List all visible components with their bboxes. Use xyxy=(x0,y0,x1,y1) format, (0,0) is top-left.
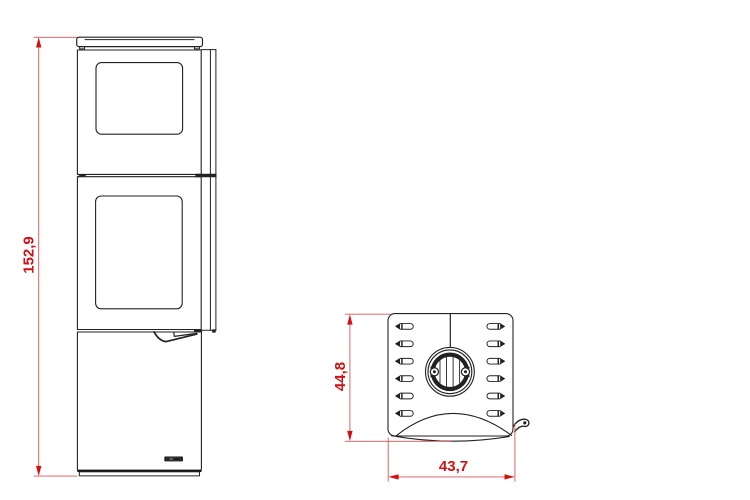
svg-text:44,8: 44,8 xyxy=(332,362,349,391)
svg-text:152,9: 152,9 xyxy=(21,236,38,274)
svg-text:43,7: 43,7 xyxy=(439,458,468,475)
